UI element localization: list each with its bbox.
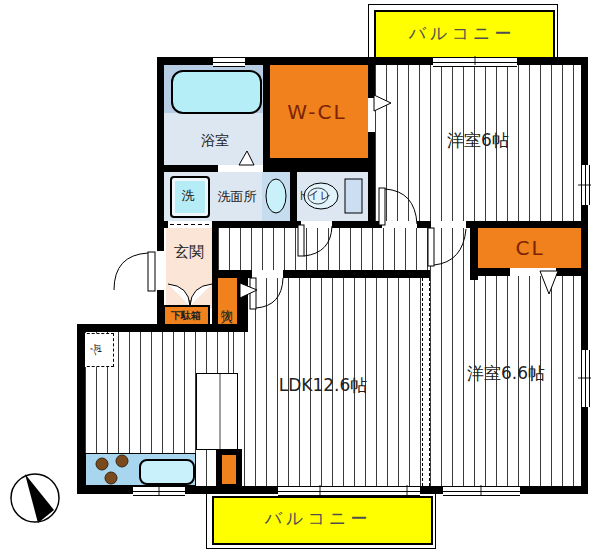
front-door-opening xyxy=(157,251,164,290)
window-bedroom66-bottom xyxy=(443,486,520,496)
closet-label: CL xyxy=(515,238,544,258)
wall-closet-bottom-left xyxy=(470,268,510,276)
washroom-sliding-opening xyxy=(168,221,212,228)
bedroom66-label: 洋室6.6帖 xyxy=(467,365,545,382)
wall-left-upper xyxy=(157,57,164,332)
window-bedroom6-top xyxy=(433,57,517,67)
wall-storage-right xyxy=(237,270,248,332)
kitchen-sink xyxy=(139,459,195,485)
bathroom-label: 浴室 xyxy=(201,133,229,147)
wcl-label: W-CL xyxy=(287,102,346,122)
vanity-unit xyxy=(262,172,290,221)
bathtub xyxy=(171,70,262,114)
wall-right xyxy=(581,57,588,494)
bedroom6-door-opening xyxy=(382,221,417,228)
window-bedroom6-right xyxy=(581,165,590,205)
entrance xyxy=(166,228,212,308)
window-ldk xyxy=(278,486,420,496)
compass-icon xyxy=(11,474,59,523)
washing-machine-label: 洗 xyxy=(182,189,195,202)
storage-label: 物入 xyxy=(221,299,233,303)
wall-bathroom-right xyxy=(263,57,270,172)
wall-middle xyxy=(157,221,588,228)
closet-opening xyxy=(510,268,556,276)
ldk-label: LDK12.6帖 xyxy=(279,377,368,394)
balcony-bottom-label: バルコニー xyxy=(265,510,372,527)
floorplan: バルコニー 浴室 洗 洗面所 トイレ W-CL 洋室6帖 CL 玄関 物入 下駄… xyxy=(0,0,600,552)
ldk-bedroom66-partition xyxy=(422,278,430,486)
entrance-label: 玄関 xyxy=(174,245,204,260)
kitchen-island xyxy=(196,373,238,450)
ldk-door-opening xyxy=(252,270,283,278)
wall-bedroom6-left xyxy=(368,57,375,221)
wall-washroom-toilet xyxy=(290,172,297,221)
front-door-icon xyxy=(114,252,155,291)
toilet-door-opening xyxy=(301,221,332,228)
wall-left-lower xyxy=(77,324,85,494)
toilet-label: トイレ xyxy=(297,190,331,201)
wall-kitchen-top xyxy=(77,324,248,332)
bedroom6-label: 洋室6帖 xyxy=(447,132,509,149)
wall-partition-stub xyxy=(422,270,430,278)
bedroom66-door-opening xyxy=(431,221,466,228)
bathroom-door-opening xyxy=(218,165,263,172)
wall-closet-bottom-right xyxy=(556,268,581,276)
shoe-cabinet-label: 下駄箱 xyxy=(171,311,201,321)
pipe-space xyxy=(216,449,242,490)
window-kitchen xyxy=(133,486,185,496)
washroom-label: 洗面所 xyxy=(218,190,257,203)
window-bedroom66-right xyxy=(581,350,590,407)
window-bathroom xyxy=(213,57,245,67)
wcl-door-opening xyxy=(368,98,375,132)
wall-bathroom-bottom xyxy=(157,165,218,172)
balcony-top-label: バルコニー xyxy=(409,25,516,42)
wall-wcl-bottom xyxy=(263,158,375,172)
